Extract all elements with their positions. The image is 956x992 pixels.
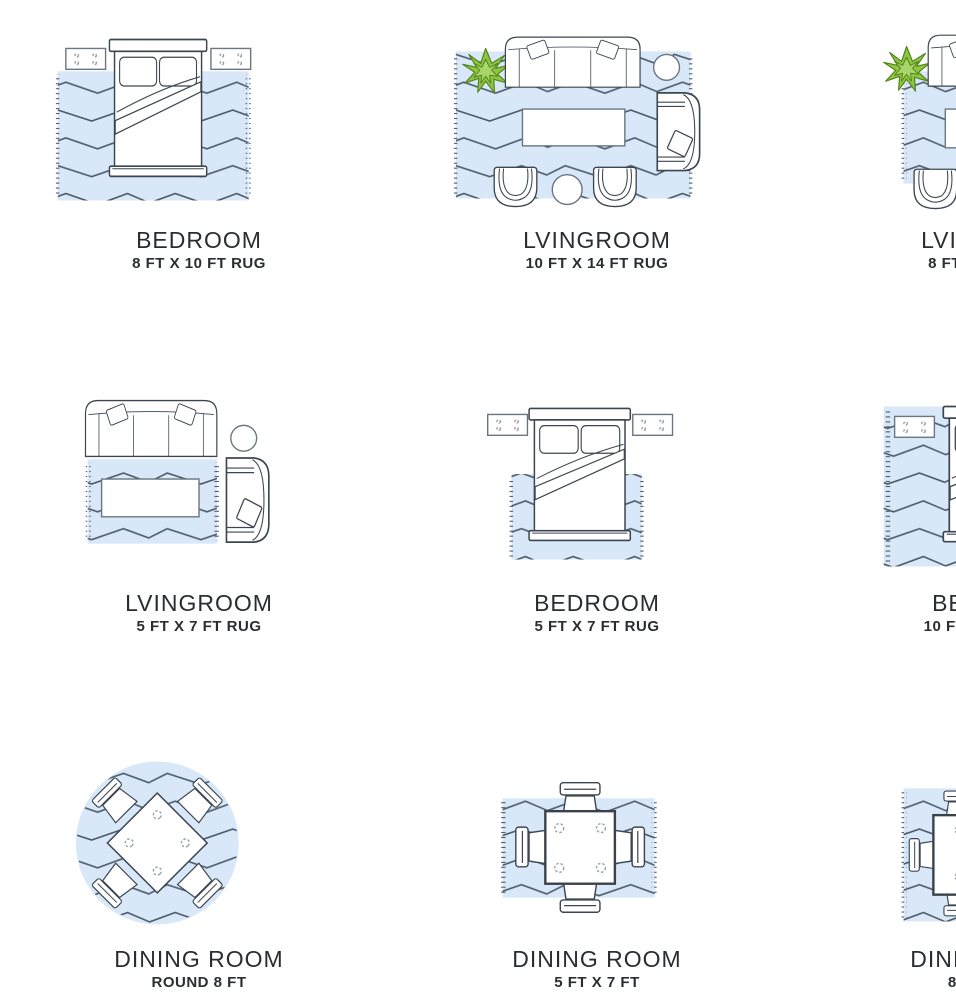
rug-size-label: 10 FT X 14 FT RUG (924, 618, 956, 635)
room-title: DINING ROOM (910, 946, 956, 972)
card-caption: LVINGROOM 8 FT X 10 FT RUG (921, 227, 956, 273)
bed-icon (529, 408, 630, 540)
card-caption: DINING ROOM 8 FT X 10 FT (910, 946, 956, 992)
bed-icon (109, 40, 206, 177)
coffee-table-icon (102, 479, 199, 517)
rug-size-label: 8 FT X 10 FT RUG (921, 255, 956, 272)
armchair-icon (226, 458, 268, 542)
card-caption: DINING ROOM ROUND 8 FT (114, 946, 283, 992)
rug-size-label: ROUND 8 FT (114, 974, 283, 991)
diningroom-round-8-rug-icon (40, 740, 358, 940)
rug-size-label: 5 FT X 7 FT RUG (125, 618, 273, 635)
nightstand-icon (488, 414, 528, 435)
rug-size-guide: BEDROOM 8 FT X 10 FT RUG LVINGROOM 10 FT… (0, 0, 956, 990)
card-caption: LVINGROOM 10 FT X 14 FT RUG (523, 227, 671, 273)
room-title: BEDROOM (132, 227, 266, 253)
dining-table-icon (545, 811, 615, 884)
coffee-table-icon (945, 109, 956, 148)
barrel-chair-icon (914, 169, 956, 208)
barrel-chair-icon (494, 167, 537, 206)
rug-size-label: 5 FT X 7 FT RUG (534, 618, 660, 635)
card-livingroom-8x10: LVINGROOM 8 FT X 10 FT RUG (836, 16, 956, 347)
bedroom-10x14-rug-icon (836, 384, 956, 584)
diningroom-8x10-rug-icon (836, 740, 956, 940)
side-table-icon (231, 425, 257, 451)
rug-size-label: 5 FT X 7 FT (512, 974, 681, 991)
side-table-icon (654, 54, 680, 80)
bedroom-8x10-rug-icon (40, 21, 358, 221)
card-caption: BEDROOM 8 FT X 10 FT RUG (132, 227, 266, 273)
room-title: DINING ROOM (114, 946, 283, 972)
sofa-icon (505, 37, 640, 87)
livingroom-5x7-rug-icon (40, 384, 358, 584)
card-livingroom-10x14: LVINGROOM 10 FT X 14 FT RUG (438, 16, 756, 347)
diningroom-5x7-rug-icon (438, 740, 756, 940)
card-caption: BEDROOM 5 FT X 7 FT RUG (534, 590, 660, 636)
room-title: LVINGROOM (125, 590, 273, 616)
card-dining-round-8: DINING ROOM ROUND 8 FT (40, 735, 358, 974)
card-bedroom-8x10: BEDROOM 8 FT X 10 FT RUG (40, 16, 358, 347)
sofa-icon (928, 35, 956, 86)
card-caption: DINING ROOM 5 FT X 7 FT (512, 946, 681, 992)
card-bedroom-10x14: BEDROOM 10 FT X 14 FT RUG (836, 379, 956, 703)
room-title: DINING ROOM (512, 946, 681, 972)
room-title: BEDROOM (924, 590, 956, 616)
card-caption: BEDROOM 10 FT X 14 FT RUG (924, 590, 956, 636)
room-title: LVINGROOM (523, 227, 671, 253)
small-round-table-icon (552, 175, 582, 205)
livingroom-10x14-rug-icon (438, 21, 756, 221)
card-caption: LVINGROOM 5 FT X 7 FT RUG (125, 590, 273, 636)
sofa-icon (85, 401, 216, 457)
room-title: BEDROOM (534, 590, 660, 616)
bedroom-5x7-rug-icon (438, 384, 756, 584)
barrel-chair-icon (594, 167, 637, 206)
room-title: LVINGROOM (921, 227, 956, 253)
nightstand-icon (895, 416, 935, 437)
rug-size-label: 8 FT X 10 FT (910, 974, 956, 991)
rug-size-label: 10 FT X 14 FT RUG (523, 255, 671, 272)
coffee-table-icon (522, 109, 624, 146)
card-bedroom-5x7: BEDROOM 5 FT X 7 FT RUG (438, 379, 756, 703)
card-dining-8x10: DINING ROOM 8 FT X 10 FT (836, 735, 956, 974)
nightstand-icon (633, 414, 673, 435)
nightstand-icon (211, 48, 251, 69)
armchair-icon (657, 93, 699, 171)
card-dining-5x7: DINING ROOM 5 FT X 7 FT (438, 735, 756, 974)
nightstand-icon (66, 48, 106, 69)
rug-size-label: 8 FT X 10 FT RUG (132, 255, 266, 272)
card-livingroom-5x7: LVINGROOM 5 FT X 7 FT RUG (40, 379, 358, 703)
livingroom-8x10-rug-icon (836, 21, 956, 221)
dining-table-icon (933, 815, 956, 895)
